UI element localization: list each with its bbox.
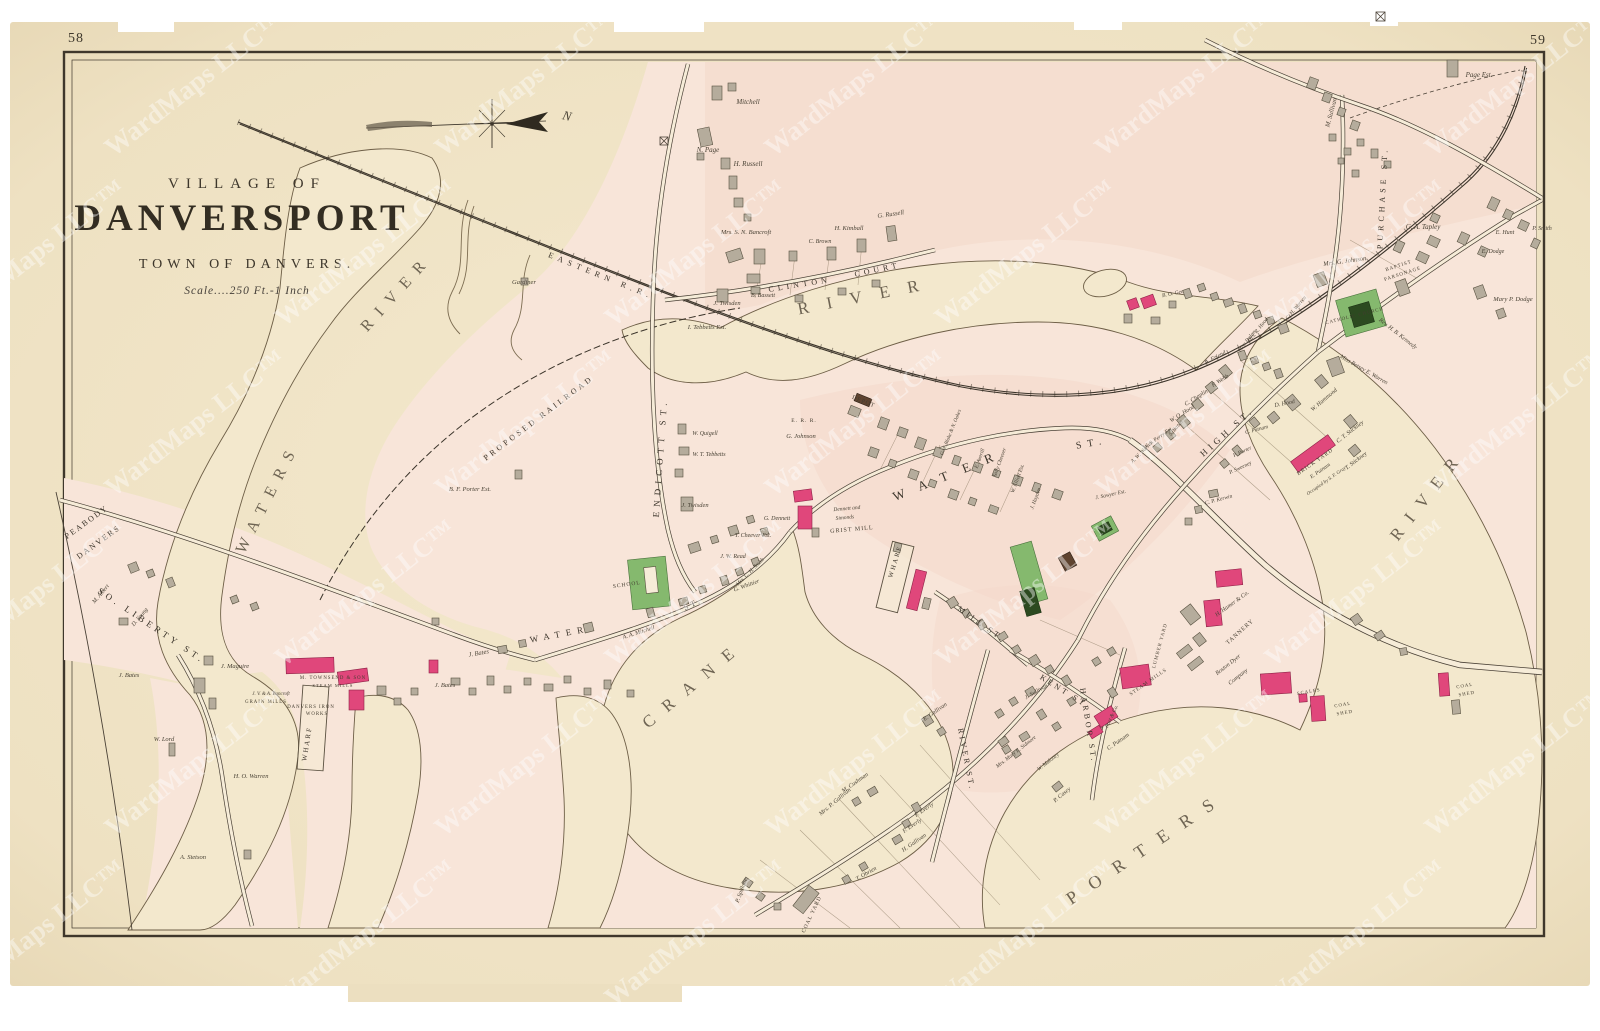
- owner-label: J. Bates: [435, 682, 456, 689]
- building: [644, 566, 659, 593]
- owner-label: H. Russell: [733, 160, 763, 168]
- building: [1151, 317, 1160, 324]
- place-label: WORKS: [306, 712, 328, 717]
- building-highlighted: [1438, 673, 1450, 697]
- building: [728, 83, 736, 91]
- owner-label: W. T. Tebbetts: [692, 452, 726, 458]
- building: [789, 251, 797, 261]
- owner-label: J. Bates: [119, 672, 140, 679]
- building: [504, 686, 511, 693]
- building: [518, 639, 526, 647]
- building: [812, 528, 819, 537]
- building: [1329, 134, 1336, 141]
- building: [1371, 149, 1378, 158]
- danversport-map: VILLAGE OF DANVERSPORT TOWN OF DANVERS. …: [0, 0, 1600, 1031]
- owner-label: Mary P. Dodge: [1492, 296, 1533, 303]
- building: [1352, 170, 1359, 177]
- building: [1124, 314, 1132, 323]
- building: [194, 678, 205, 693]
- building: [721, 158, 730, 169]
- building: [679, 447, 689, 455]
- building: [524, 678, 531, 685]
- building: [544, 684, 553, 691]
- building: [675, 469, 683, 477]
- building: [432, 618, 439, 625]
- owner-label: Mitchell: [735, 98, 759, 106]
- building: [469, 688, 476, 695]
- building: [377, 686, 386, 695]
- building: [712, 86, 722, 100]
- building: [627, 690, 634, 697]
- owner-label: C. Brown: [809, 239, 832, 245]
- building-highlighted: [349, 690, 364, 710]
- building: [857, 239, 866, 252]
- building-highlighted: [798, 506, 812, 529]
- building: [515, 470, 522, 479]
- building: [244, 850, 251, 859]
- page-number-left: 58: [68, 31, 84, 46]
- building: [1169, 301, 1176, 308]
- owner-label: W. Lord: [154, 736, 175, 743]
- owner-label: Page Est.: [1465, 71, 1493, 79]
- place-label: DANVERS IRON: [287, 705, 335, 710]
- building-highlighted: [1310, 696, 1326, 722]
- building: [1357, 139, 1364, 146]
- building: [729, 176, 737, 189]
- building: [564, 676, 571, 683]
- atlas-photo: VILLAGE OF DANVERSPORT TOWN OF DANVERS. …: [0, 0, 1600, 1031]
- owner-label: H. Kimball: [834, 225, 864, 232]
- building: [747, 274, 760, 283]
- owner-label: J. Maguire: [221, 663, 249, 670]
- building: [1399, 647, 1407, 655]
- building: [1451, 700, 1460, 715]
- building: [678, 424, 686, 434]
- building: [411, 688, 418, 695]
- map-subtitle-top: VILLAGE OF: [168, 176, 326, 192]
- owner-label: Gardiner: [512, 279, 536, 286]
- place-label: M. TOWNSEND & SON: [300, 676, 366, 681]
- owner-label: A. Stetson: [179, 854, 206, 861]
- building: [1447, 60, 1458, 77]
- building: [827, 247, 836, 260]
- building-highlighted: [429, 660, 438, 673]
- building: [487, 676, 494, 685]
- building-highlighted: [793, 489, 812, 502]
- owner-label: I. Tebbetts Est.: [687, 324, 727, 331]
- building: [169, 743, 175, 756]
- owner-label: B. Bassett: [751, 293, 775, 299]
- building-highlighted: [1215, 569, 1243, 588]
- building: [1338, 158, 1344, 164]
- building: [119, 618, 128, 625]
- owner-label: N. Page: [696, 146, 720, 154]
- owner-label: E. Hunt: [1495, 230, 1515, 236]
- map-title: DANVERSPORT: [74, 198, 409, 239]
- building: [1344, 148, 1351, 155]
- building: [394, 698, 401, 705]
- building: [697, 153, 704, 160]
- building: [1185, 518, 1192, 525]
- owner-label: P. Smith: [1531, 226, 1552, 232]
- building: [209, 698, 216, 709]
- place-label: E. R. R.: [791, 418, 817, 424]
- building: [886, 225, 897, 241]
- building: [774, 903, 781, 910]
- building: [1194, 505, 1202, 513]
- owner-label: H. O. Warren: [233, 773, 269, 780]
- owner-label: J. Twisden: [681, 502, 708, 509]
- building: [754, 249, 765, 264]
- owner-label: J. Twisden: [713, 300, 740, 307]
- building: [497, 645, 507, 653]
- owner-label: W. Quigell: [692, 431, 718, 437]
- place-label: STEAM MILLS: [313, 683, 354, 688]
- owner-label: E. Dodge: [1481, 249, 1505, 255]
